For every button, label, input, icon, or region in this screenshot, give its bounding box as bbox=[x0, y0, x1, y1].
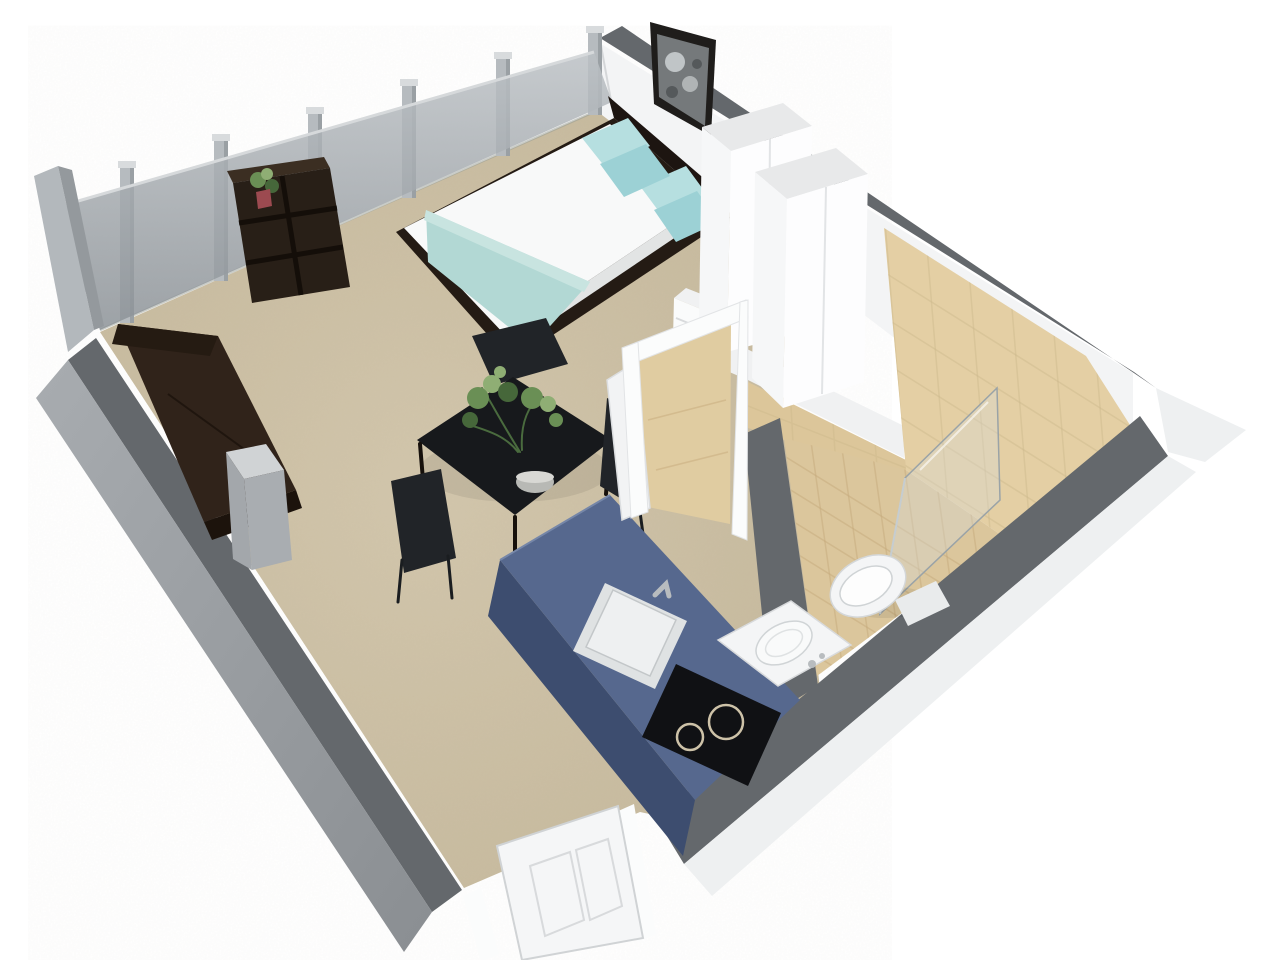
floor-plan-3d-render bbox=[0, 0, 1280, 960]
floor-plan-canvas bbox=[0, 0, 1280, 960]
basin-tap-icon bbox=[808, 660, 816, 668]
